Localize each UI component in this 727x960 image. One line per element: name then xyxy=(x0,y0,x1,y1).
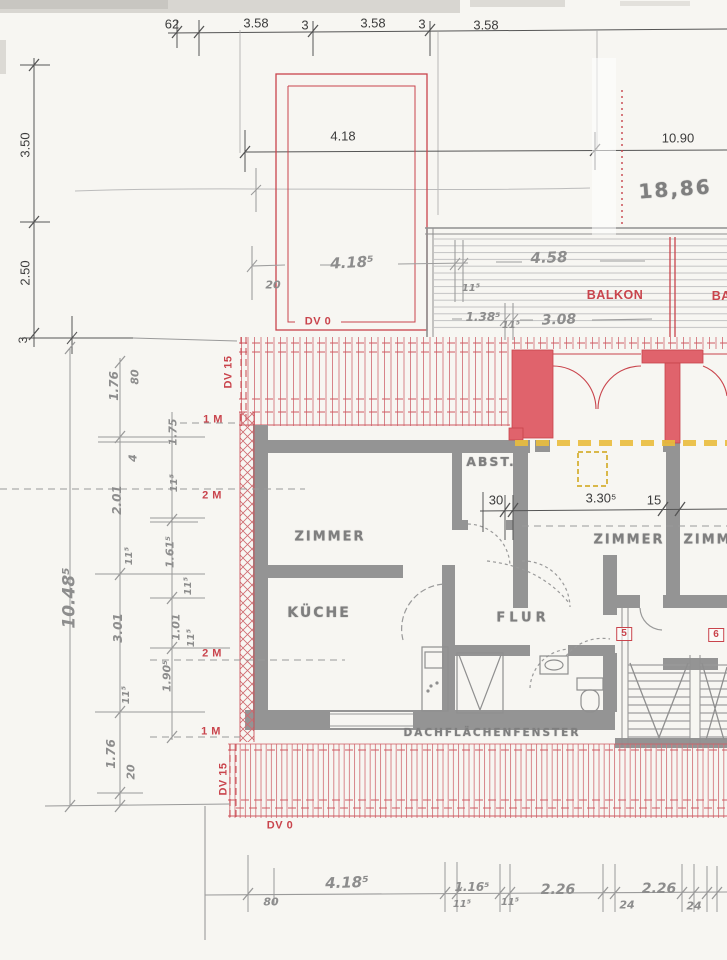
hw-dim-115-g: 11⁵ xyxy=(187,629,197,647)
dim-left-250: 2.50 xyxy=(19,260,32,285)
stair-flat-6: 6 xyxy=(708,628,724,642)
hw-dim-201: 2.01 xyxy=(111,485,123,515)
height-2m-top: 2 M xyxy=(202,491,222,502)
hw-dim-175: 1.75 xyxy=(168,418,179,445)
roof-hatch-bottom xyxy=(228,744,727,818)
room-zimmer-right: ZIMMER xyxy=(683,534,727,547)
scan-artifacts xyxy=(0,0,690,74)
hw-dim-115-c: 11⁵ xyxy=(125,547,135,565)
room-flur: FLUR xyxy=(496,612,549,625)
hw-dim-115-i: 11⁵ xyxy=(501,898,519,908)
hw-dim-1385: 1.38⁵ xyxy=(466,311,501,323)
balcony xyxy=(247,90,727,340)
dim-left-350: 3.50 xyxy=(19,132,32,157)
dim-top-3a: 3 xyxy=(301,19,308,32)
stair-flat-5: 5 xyxy=(616,627,632,641)
height-2m-bottom: 2 M xyxy=(202,649,222,660)
hw-dim-101: 1.01 xyxy=(171,613,182,640)
hw-dim-226-a: 2.26 xyxy=(541,883,576,897)
hw-dim-115-e: 11⁵ xyxy=(170,474,180,492)
dim-top-358c: 3.58 xyxy=(473,19,498,32)
left-dimension-chain xyxy=(20,58,237,354)
dim-1090: 10.90 xyxy=(662,132,695,145)
hw-dim-176-a: 1.76 xyxy=(108,371,120,401)
toilet-icon xyxy=(577,678,603,690)
hw-dim-115-b: 11⁵ xyxy=(502,321,520,331)
sloped-wall-crosshatch xyxy=(240,412,254,742)
hw-dim-4185-bot: 4.18⁵ xyxy=(325,875,369,892)
balkon-label-2: BALKON xyxy=(712,290,727,303)
room-abst: ABST. xyxy=(466,456,516,469)
hw-dim-308: 3.08 xyxy=(541,312,576,327)
hw-dim-115-h: 11⁵ xyxy=(453,900,471,910)
hw-dim-80-a: 80 xyxy=(130,369,141,384)
hw-dim-418-top: 4.18⁵ xyxy=(330,254,374,271)
hw-dim-80-bot: 80 xyxy=(263,897,278,908)
dv15-bottom-label: DV 15 xyxy=(219,762,230,795)
dim-3305: 3.30⁵ xyxy=(586,492,617,505)
label-dachflaechenfenster: DACHFLÄCHENFENSTER xyxy=(404,728,581,739)
room-zimmer-mid: ZIMMER xyxy=(593,534,664,547)
hw-dim-20-top: 20 xyxy=(265,280,280,291)
height-1m-top: 1 M xyxy=(203,415,223,426)
hw-dim-115-d: 11⁵ xyxy=(122,686,132,704)
hw-dim-24-a: 24 xyxy=(619,900,634,911)
hw-dim-226-b: 2.26 xyxy=(642,882,677,896)
dim-left-3: 3 xyxy=(17,337,29,344)
floor-plan-sheet: 623.5833.5833.583.502.5034.1810.9018,863… xyxy=(0,0,727,960)
stamp-1886: 18,86 xyxy=(638,176,712,201)
dv15-top-label: DV 15 xyxy=(224,355,235,388)
room-kueche: KÜCHE xyxy=(287,606,351,620)
hw-dim-458: 4.58 xyxy=(530,250,568,266)
hw-dim-301: 3.01 xyxy=(112,613,124,643)
hw-dim-176-b: 1.76 xyxy=(105,739,117,769)
hw-dim-1615: 1.61⁵ xyxy=(165,536,176,568)
dim-418: 4.18 xyxy=(330,130,355,143)
sink-icon xyxy=(540,656,568,674)
hw-dim-1165: 1.16⁵ xyxy=(455,881,490,893)
hw-dim-115-a: 11⁵ xyxy=(462,284,480,294)
kitchen-window xyxy=(330,712,413,728)
paper-fold xyxy=(592,58,616,235)
dim-top-358a: 3.58 xyxy=(243,17,268,30)
roof-terrace-outline xyxy=(276,74,427,330)
balkon-label-1: BALKON xyxy=(587,289,643,302)
dim-30: 30 xyxy=(489,494,503,507)
mid-dimension-line xyxy=(75,130,727,212)
hw-dim-24-b: 24 xyxy=(686,901,701,912)
room-zimmer-left: ZIMMER xyxy=(294,531,365,544)
hw-dim-1048: 10.48⁵ xyxy=(62,567,79,628)
dv0-bottom-label: DV 0 xyxy=(267,821,293,832)
dim-top-62: 62 xyxy=(165,18,179,31)
hw-dim-115-f: 11⁵ xyxy=(184,577,194,595)
dv0-top-label: DV 0 xyxy=(305,317,331,328)
floor-plan-drawing xyxy=(0,0,727,960)
dim-top-3b: 3 xyxy=(418,18,425,31)
left-hand-dimension-chains xyxy=(45,342,230,940)
height-dashed-lines xyxy=(0,423,727,737)
balcony-doors-and-red-walls xyxy=(509,350,727,443)
roof-window-marker xyxy=(578,452,607,486)
dim-15: 15 xyxy=(647,494,661,507)
hw-dim-1905: 1.90⁵ xyxy=(162,660,173,692)
hw-dim-4: 4 xyxy=(128,454,139,462)
hw-dim-20-b: 20 xyxy=(126,764,137,779)
dim-top-358b: 3.58 xyxy=(360,17,385,30)
height-1m-bottom: 1 M xyxy=(201,727,221,738)
